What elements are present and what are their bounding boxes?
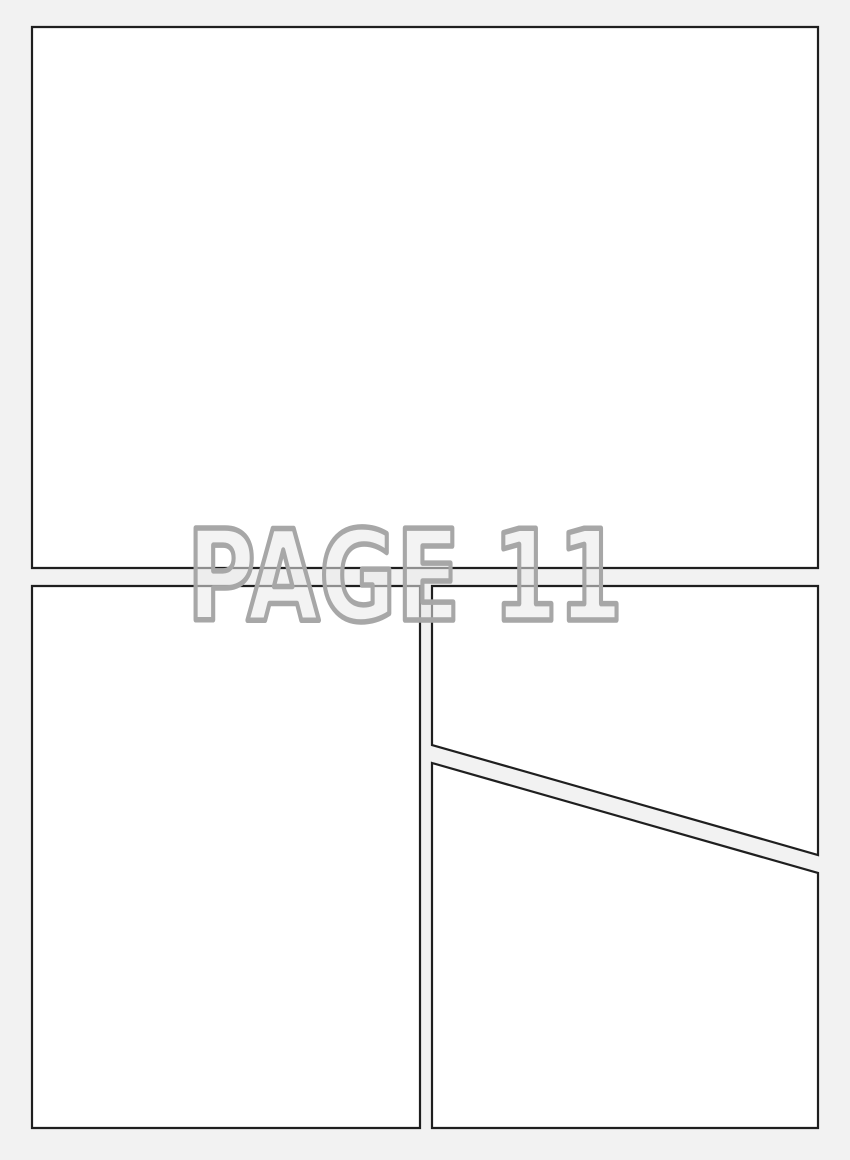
comic-panel-top	[32, 27, 818, 568]
page-number-label: PAGE 11	[187, 503, 623, 650]
panel-layout: PAGE 11	[0, 0, 850, 1160]
comic-panel-bottom-left	[32, 586, 420, 1128]
comic-page-template: PAGE 11	[0, 0, 850, 1160]
